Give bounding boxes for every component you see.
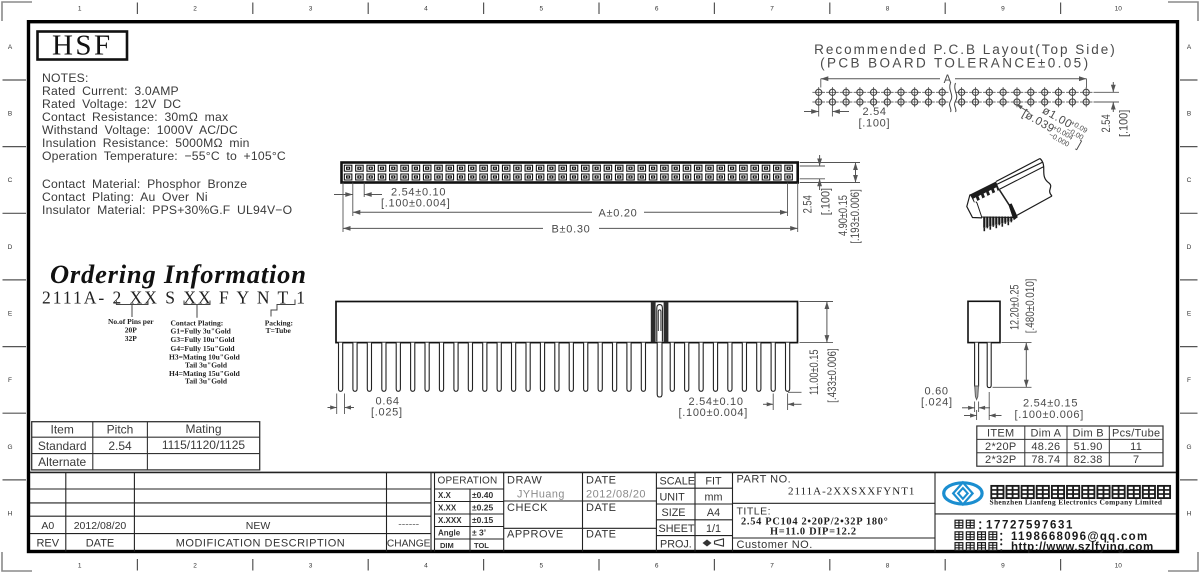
svg-text:32P: 32P xyxy=(125,334,138,343)
svg-text:11.00±0.15: 11.00±0.15 xyxy=(807,349,821,395)
svg-text:TOL: TOL xyxy=(474,541,489,550)
svg-text:5: 5 xyxy=(539,563,543,570)
svg-text:6: 6 xyxy=(655,6,659,13)
svg-text:D: D xyxy=(8,244,13,251)
svg-text:Standard: Standard xyxy=(38,439,87,453)
svg-text:1: 1 xyxy=(78,563,82,570)
svg-text:Ordering Information: Ordering Information xyxy=(50,259,307,289)
svg-text:7: 7 xyxy=(1133,454,1139,466)
svg-text:SIZE: SIZE xyxy=(662,507,686,519)
svg-text:[.100±0.004]: [.100±0.004] xyxy=(381,198,451,210)
svg-text:D: D xyxy=(1187,244,1192,251)
svg-text:PART NO.: PART NO. xyxy=(737,474,792,486)
svg-text:3: 3 xyxy=(309,6,313,13)
svg-text:NOTES:: NOTES: xyxy=(42,71,89,85)
svg-text:82.38: 82.38 xyxy=(1074,454,1103,466)
svg-text:±0.40: ±0.40 xyxy=(472,490,493,500)
svg-text:F: F xyxy=(8,377,12,384)
svg-text:C: C xyxy=(8,177,13,184)
svg-text:Operation Temperature: −55°C t: Operation Temperature: −55°C to +105°C xyxy=(42,149,286,163)
svg-text:± 3’: ± 3’ xyxy=(472,527,486,537)
svg-text:10: 10 xyxy=(1115,563,1123,570)
svg-text:4: 4 xyxy=(424,563,428,570)
svg-text:PROJ.: PROJ. xyxy=(660,539,692,551)
svg-text:1/1: 1/1 xyxy=(706,523,721,535)
svg-text:7: 7 xyxy=(770,6,774,13)
svg-text:2012/08/20: 2012/08/20 xyxy=(74,520,127,532)
svg-text:[.100]: [.100] xyxy=(859,118,891,130)
svg-text:5: 5 xyxy=(539,6,543,13)
svg-text:17727597631: 17727597631 xyxy=(986,519,1074,531)
svg-text:48.26: 48.26 xyxy=(1031,441,1060,453)
svg-text:78.74: 78.74 xyxy=(1031,454,1060,466)
svg-text:4: 4 xyxy=(424,6,428,13)
svg-text:------: ------ xyxy=(398,519,419,531)
svg-text:DATE: DATE xyxy=(586,502,617,514)
svg-text:12.20±0.25: 12.20±0.25 xyxy=(1007,284,1021,330)
svg-text:2: 2 xyxy=(193,6,197,13)
svg-text:JYHuang: JYHuang xyxy=(517,489,565,501)
svg-text:Angle: Angle xyxy=(438,528,461,537)
svg-text:H: H xyxy=(1187,511,1192,518)
svg-text:SCALE: SCALE xyxy=(660,476,695,488)
svg-text:A: A xyxy=(8,44,13,51)
svg-text:Rated Current: 3.0AMP: Rated Current: 3.0AMP xyxy=(42,84,179,98)
svg-text:2.54: 2.54 xyxy=(863,106,887,118)
svg-text:ITEM: ITEM xyxy=(987,427,1014,439)
svg-text:B: B xyxy=(8,111,12,118)
svg-text:A±0.20: A±0.20 xyxy=(599,208,638,220)
svg-text:MODIFICATION DESCRIPTION: MODIFICATION DESCRIPTION xyxy=(176,538,345,550)
svg-text:Mating: Mating xyxy=(185,422,221,436)
svg-text:Insulation Resistance: 5000MΩ: Insulation Resistance: 5000MΩ min xyxy=(42,136,250,150)
svg-text:A4: A4 xyxy=(707,507,720,519)
svg-text:8: 8 xyxy=(886,563,890,570)
svg-text:51.90: 51.90 xyxy=(1074,441,1103,453)
svg-text:DATE: DATE xyxy=(586,475,617,487)
svg-text:[.024]: [.024] xyxy=(921,397,953,409)
svg-text:X.X: X.X xyxy=(438,491,452,500)
svg-text:T=Tube: T=Tube xyxy=(266,326,292,335)
svg-text:Contact Material: Phosphor Bro: Contact Material: Phosphor Bronze xyxy=(42,177,247,191)
svg-text:[.433±0.006]: [.433±0.006] xyxy=(825,348,839,403)
svg-text:2*20P: 2*20P xyxy=(985,441,1016,453)
svg-text:2111A-2XXSXXFYNT1: 2111A-2XXSXXFYNT1 xyxy=(788,486,915,498)
svg-text:NEW: NEW xyxy=(246,520,271,532)
svg-text:Item: Item xyxy=(51,423,74,437)
svg-text:X.XX: X.XX xyxy=(438,503,457,512)
svg-text:Pitch: Pitch xyxy=(107,423,134,437)
svg-text:X.XXX: X.XXX xyxy=(438,516,462,525)
svg-text:B: B xyxy=(1187,111,1191,118)
svg-text:2*32P: 2*32P xyxy=(985,454,1016,466)
svg-text:HSF: HSF xyxy=(52,30,113,62)
svg-text:REV: REV xyxy=(36,538,59,550)
svg-text:G: G xyxy=(7,444,12,451)
svg-text:2: 2 xyxy=(193,563,197,570)
svg-text:8: 8 xyxy=(886,6,890,13)
svg-text:2012/08/20: 2012/08/20 xyxy=(586,489,646,501)
svg-text:9: 9 xyxy=(1001,6,1005,13)
svg-text:(PCB BOARD TOLERANCE±0.05): (PCB BOARD TOLERANCE±0.05) xyxy=(820,56,1090,71)
svg-text:9: 9 xyxy=(1001,563,1005,570)
svg-text:Tail 3u"Gold: Tail 3u"Gold xyxy=(185,377,228,386)
svg-text:Shenzhen Lianfeng Electronics: Shenzhen Lianfeng Electronics Company Li… xyxy=(990,497,1163,506)
svg-text:Alternate: Alternate xyxy=(38,455,86,469)
svg-text:Rated Voltage: 12V DC: Rated Voltage: 12V DC xyxy=(42,97,181,111)
svg-text:±0.15: ±0.15 xyxy=(472,515,493,525)
svg-text:C: C xyxy=(1187,177,1192,184)
svg-text:DIM: DIM xyxy=(440,541,454,550)
svg-text:E: E xyxy=(1187,311,1192,318)
svg-text:[.025]: [.025] xyxy=(371,407,403,419)
svg-text:APPROVE: APPROVE xyxy=(507,529,564,541)
svg-text:7: 7 xyxy=(770,563,774,570)
svg-text:Contact Resistance: 30mΩ max: Contact Resistance: 30mΩ max xyxy=(42,110,228,124)
svg-text:Contact Plating: Au Over Ni: Contact Plating: Au Over Ni xyxy=(42,190,208,204)
svg-text:UNIT: UNIT xyxy=(660,491,686,503)
svg-text:http://www.szlfying.com: http://www.szlfying.com xyxy=(1011,542,1154,554)
svg-text:3: 3 xyxy=(309,563,313,570)
svg-text:[.193±0.006]: [.193±0.006] xyxy=(848,189,862,244)
svg-text:[.100]: [.100] xyxy=(1116,110,1130,137)
svg-text:Insulator Material: PPS+30%G.F: Insulator Material: PPS+30%G.F UL94V−O xyxy=(42,203,292,217)
svg-text:B±0.30: B±0.30 xyxy=(552,224,591,236)
svg-text:1: 1 xyxy=(78,6,82,13)
svg-text:A: A xyxy=(1187,44,1192,51)
svg-text:2.54: 2.54 xyxy=(801,195,815,213)
svg-text:2111A- 2 XX S XX F Y N T 1: 2111A- 2 XX S XX F Y N T 1 xyxy=(42,288,305,308)
svg-text:6: 6 xyxy=(655,563,659,570)
svg-text:[.480±0.010]: [.480±0.010] xyxy=(1023,279,1037,334)
svg-text:H=11.0 DIP=12.2: H=11.0 DIP=12.2 xyxy=(770,527,857,538)
svg-text:11: 11 xyxy=(1130,441,1142,453)
svg-text:Dim B: Dim B xyxy=(1072,427,1103,439)
svg-text:F: F xyxy=(1187,377,1191,384)
svg-text:FIT: FIT xyxy=(705,476,722,488)
svg-text:E: E xyxy=(8,311,13,318)
svg-text:[.100±0.006]: [.100±0.006] xyxy=(1015,409,1085,421)
svg-text:SHEET: SHEET xyxy=(659,523,695,535)
svg-text:]: ] xyxy=(1075,139,1084,151)
svg-text:H: H xyxy=(8,511,13,518)
svg-text:DRAW: DRAW xyxy=(507,475,542,487)
svg-text:Customer NO.: Customer NO. xyxy=(737,539,813,551)
svg-text:DATE: DATE xyxy=(586,529,617,541)
svg-text:：: ： xyxy=(999,542,1010,554)
svg-text:OPERATION: OPERATION xyxy=(438,476,498,487)
svg-text:G3=Fully 10u"Gold: G3=Fully 10u"Gold xyxy=(171,335,236,344)
svg-text:CHECK: CHECK xyxy=(507,502,548,514)
svg-text:DATE: DATE xyxy=(86,538,115,550)
svg-text:CHANGE: CHANGE xyxy=(387,539,431,550)
svg-text:[.100]: [.100] xyxy=(819,188,833,215)
svg-text:2.54: 2.54 xyxy=(1099,114,1113,132)
svg-text:±0.25: ±0.25 xyxy=(472,502,493,512)
svg-text:Pcs/Tube: Pcs/Tube xyxy=(1112,427,1160,439)
svg-text:G: G xyxy=(1186,444,1191,451)
svg-text:1115/1120/1125: 1115/1120/1125 xyxy=(162,438,246,452)
svg-text:mm: mm xyxy=(705,491,723,503)
svg-text:[.100±0.004]: [.100±0.004] xyxy=(679,407,749,419)
svg-text:Withstand Voltage: 1000V AC/DC: Withstand Voltage: 1000V AC/DC xyxy=(42,123,238,137)
svg-text:10: 10 xyxy=(1115,6,1123,13)
svg-text:Dim A: Dim A xyxy=(1030,427,1061,439)
svg-text:2.54: 2.54 xyxy=(108,439,132,453)
svg-text:A0: A0 xyxy=(41,520,54,532)
